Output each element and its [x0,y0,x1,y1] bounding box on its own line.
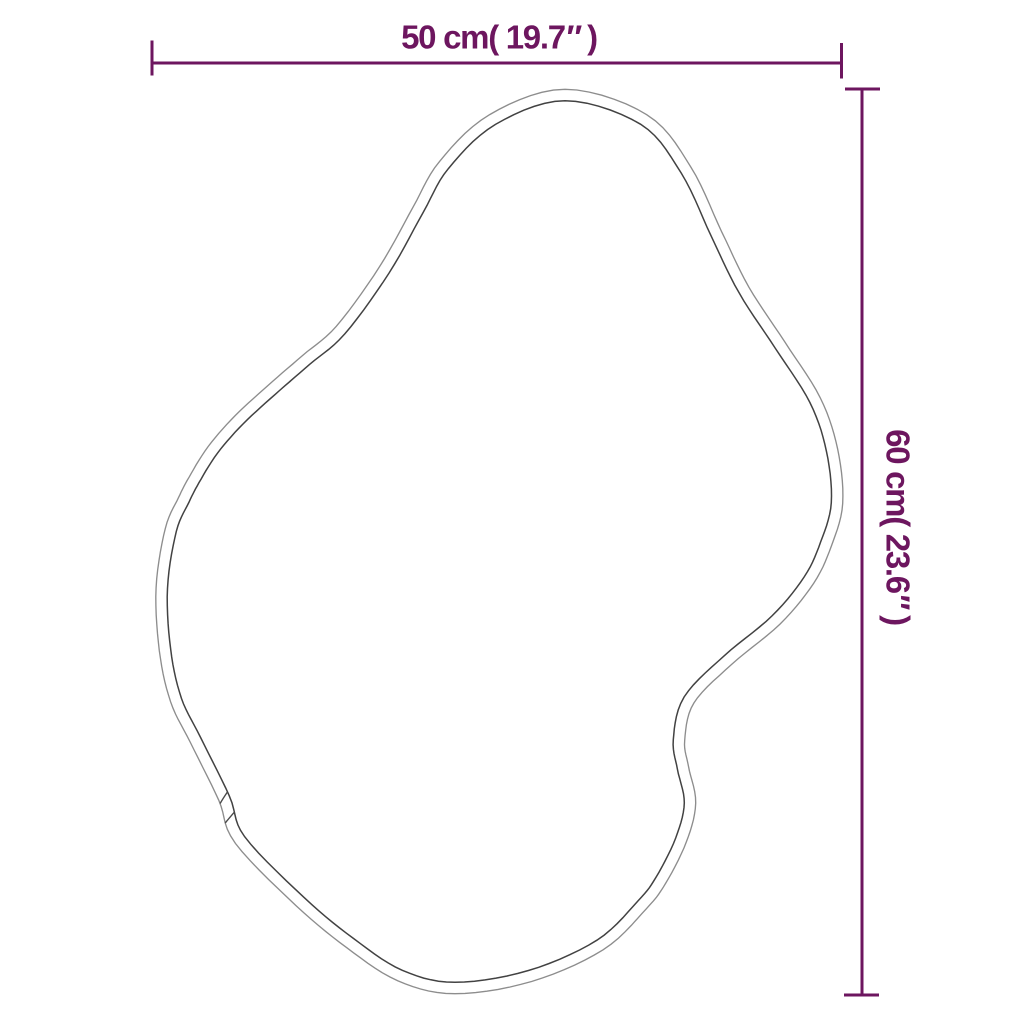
svg-text:50 cm( 19.7″ ): 50 cm( 19.7″ ) [401,19,597,56]
svg-text:60 cm( 23.6″ ): 60 cm( 23.6″ ) [880,429,917,625]
